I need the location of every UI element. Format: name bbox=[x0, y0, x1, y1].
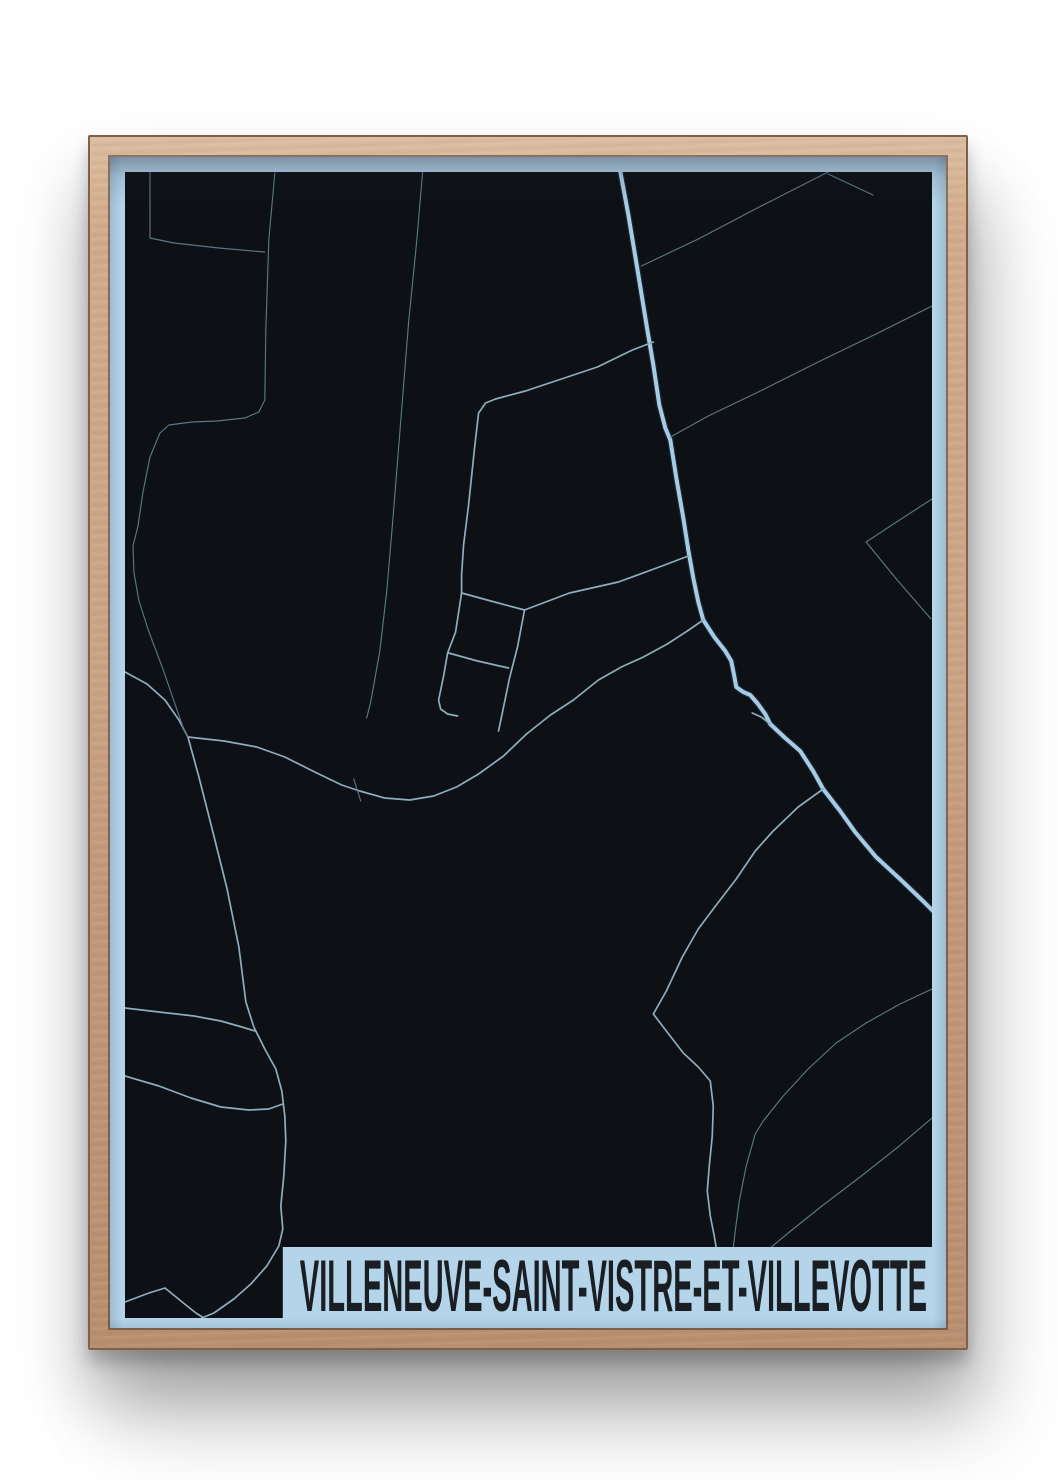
map-svg: VILLENEUVE-SAINT-VISTRE-ET-VILLEVOTTE bbox=[125, 172, 932, 1318]
poster-title: VILLENEUVE-SAINT-VISTRE-ET-VILLEVOTTE bbox=[300, 1246, 927, 1318]
product-photo: VILLENEUVE-SAINT-VISTRE-ET-VILLEVOTTE bbox=[0, 0, 1058, 1480]
map-poster: VILLENEUVE-SAINT-VISTRE-ET-VILLEVOTTE bbox=[110, 157, 946, 1328]
wooden-frame: VILLENEUVE-SAINT-VISTRE-ET-VILLEVOTTE bbox=[88, 135, 968, 1350]
